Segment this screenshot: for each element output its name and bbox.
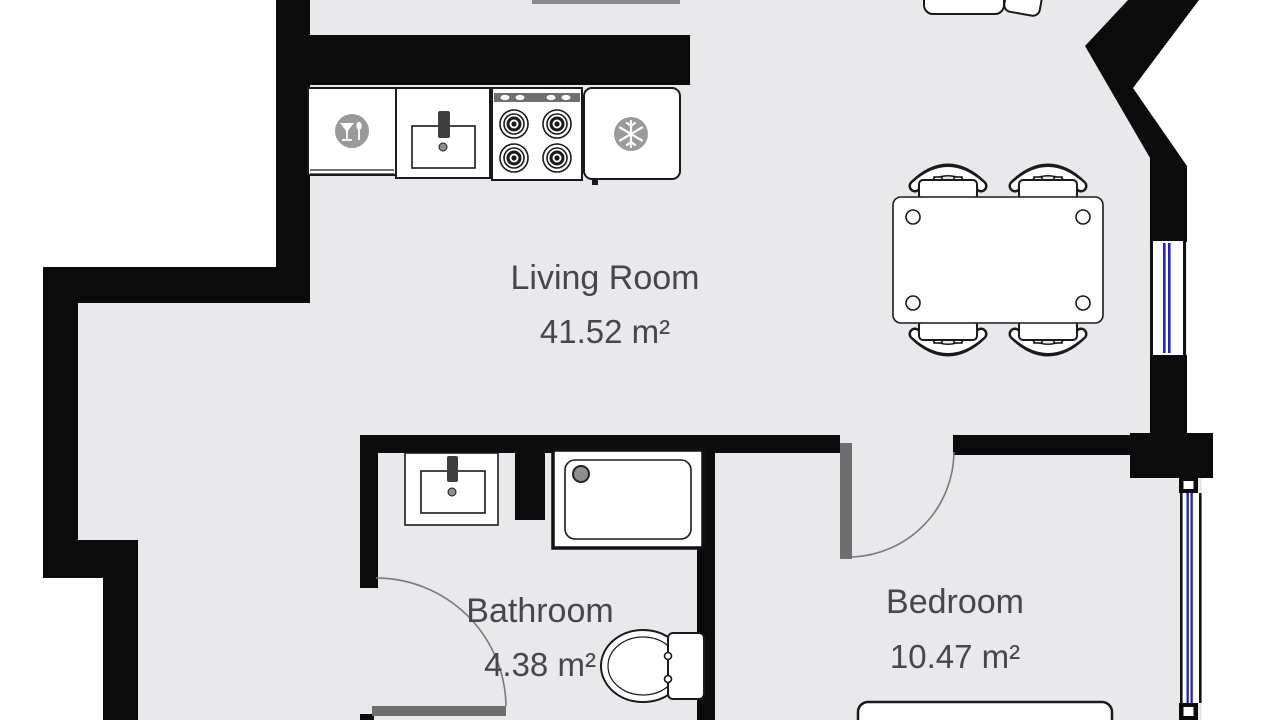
window-glass-line bbox=[1168, 243, 1171, 353]
door-leaf bbox=[372, 706, 506, 716]
window-frame-line bbox=[1180, 493, 1183, 703]
faucet bbox=[447, 456, 458, 482]
drain bbox=[448, 488, 456, 496]
bathroom-sink bbox=[405, 453, 498, 525]
dining-table bbox=[893, 197, 1103, 323]
window-cap bbox=[1150, 233, 1187, 242]
wall-segment bbox=[103, 578, 138, 720]
wall-segment bbox=[276, 0, 310, 303]
window-frame-line bbox=[1183, 241, 1186, 355]
faucet bbox=[438, 111, 450, 138]
knob bbox=[562, 95, 571, 100]
window-frame-line bbox=[1199, 493, 1202, 703]
window-glass-line bbox=[1163, 243, 1166, 353]
refrigerator bbox=[584, 88, 680, 185]
bedroom-wall bbox=[953, 435, 1130, 455]
bathroom-area: 4.38 m² bbox=[484, 646, 596, 683]
floor-plan-canvas: Living Room 41.52 m² Bathroom 4.38 m² Be… bbox=[0, 0, 1280, 720]
dining-set bbox=[893, 170, 1103, 350]
fridge-hinge bbox=[592, 178, 598, 185]
bedroom-label: Bedroom bbox=[886, 583, 1024, 621]
drain bbox=[439, 143, 447, 151]
knob bbox=[547, 95, 556, 100]
window-glass-line bbox=[1191, 493, 1193, 703]
toilet-hinge bbox=[665, 676, 672, 683]
wall-stub bbox=[515, 450, 545, 520]
entry-wall-stub bbox=[360, 714, 374, 720]
sofa-partial bbox=[924, 0, 1045, 17]
kitchen-wall bbox=[306, 35, 690, 85]
wall-segment bbox=[43, 540, 138, 578]
shower-drain bbox=[573, 466, 589, 482]
shower bbox=[553, 450, 703, 548]
kitchen-counter bbox=[308, 88, 680, 185]
window-frame-line bbox=[1150, 241, 1153, 355]
top-edge-partial-wall bbox=[532, 0, 680, 4]
wall-segment bbox=[43, 267, 78, 578]
window-living-room bbox=[1150, 241, 1186, 355]
kitchen-sink bbox=[396, 88, 490, 178]
chair bbox=[1015, 170, 1081, 199]
window-cap-inner bbox=[1184, 707, 1194, 716]
floor-plan: Living Room 41.52 m² Bathroom 4.38 m² Be… bbox=[0, 0, 1280, 720]
living-room-area: 41.52 m² bbox=[540, 313, 670, 350]
wall-segment bbox=[43, 267, 310, 303]
living-room-label: Living Room bbox=[511, 259, 700, 297]
chair bbox=[915, 170, 981, 199]
toilet-hinge bbox=[665, 653, 672, 660]
dishes-icon bbox=[335, 114, 369, 148]
knob bbox=[501, 95, 510, 100]
door-leaf bbox=[840, 443, 852, 559]
knob bbox=[516, 95, 525, 100]
bathroom-wall bbox=[360, 448, 378, 588]
window-cap-inner bbox=[1184, 481, 1194, 489]
snowflake-icon bbox=[614, 117, 648, 151]
bedroom-area: 10.47 m² bbox=[890, 638, 1020, 675]
bed bbox=[858, 702, 1112, 720]
toilet bbox=[601, 630, 704, 702]
stove bbox=[492, 88, 582, 180]
corner-wall-block bbox=[1130, 433, 1213, 478]
bathroom-label: Bathroom bbox=[466, 592, 613, 630]
chair bbox=[915, 321, 981, 350]
window-glass-line bbox=[1187, 493, 1189, 703]
chair bbox=[1015, 321, 1081, 350]
dishwasher bbox=[308, 88, 396, 175]
wall-segment bbox=[1150, 360, 1187, 437]
window-bedroom bbox=[1179, 477, 1202, 720]
